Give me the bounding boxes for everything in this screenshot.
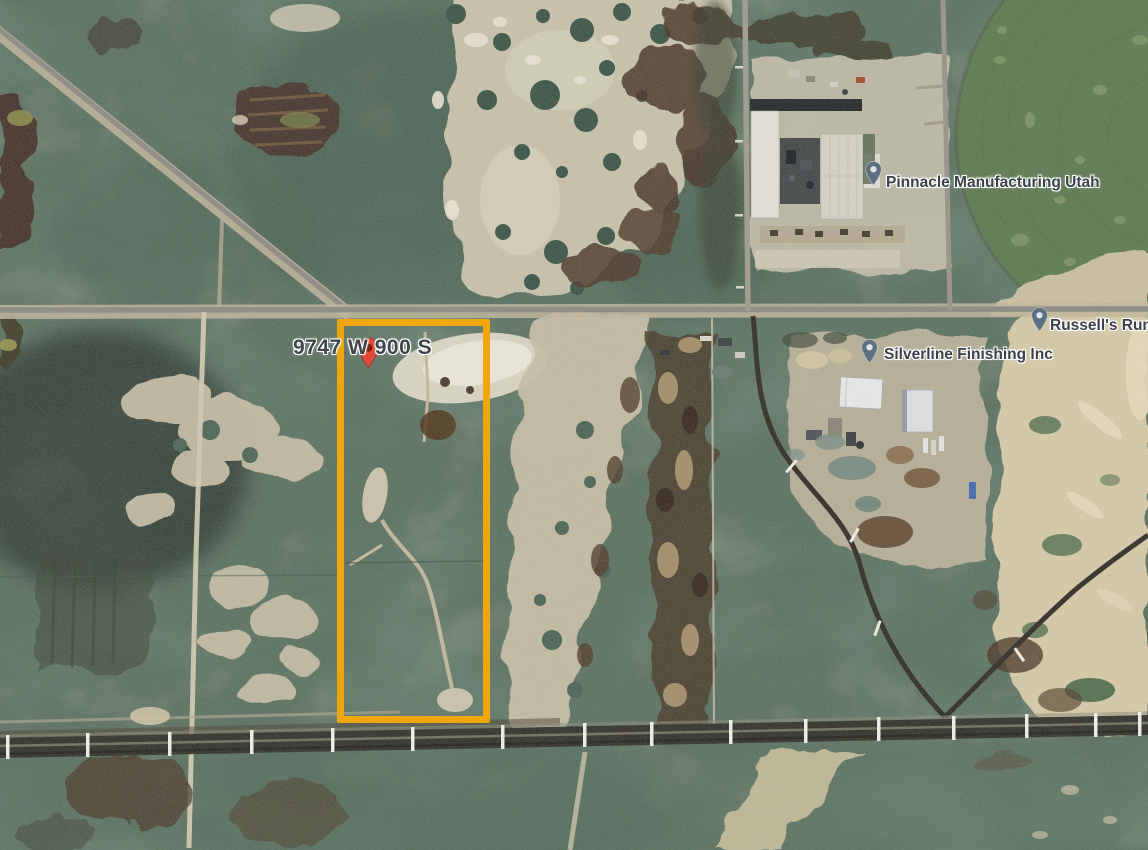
place-label-silverline-finishing[interactable]: Silverline Finishing Inc [884, 346, 1053, 364]
place-pin-icon-silverline[interactable] [861, 338, 878, 365]
place-pin-icon-pinnacle[interactable] [865, 160, 882, 187]
place-label-russells-run[interactable]: Russell's Run [1050, 317, 1148, 335]
place-pin-icon-russells-run[interactable] [1031, 306, 1048, 333]
satellite-map-canvas[interactable]: 9747 W 900 S Pinnacle Manufacturing Utah… [0, 0, 1148, 850]
parcel-highlight-rectangle [337, 319, 490, 723]
satellite-imagery [0, 0, 1148, 850]
address-label[interactable]: 9747 W 900 S [293, 336, 432, 360]
place-label-pinnacle-manufacturing[interactable]: Pinnacle Manufacturing Utah [886, 174, 1100, 192]
